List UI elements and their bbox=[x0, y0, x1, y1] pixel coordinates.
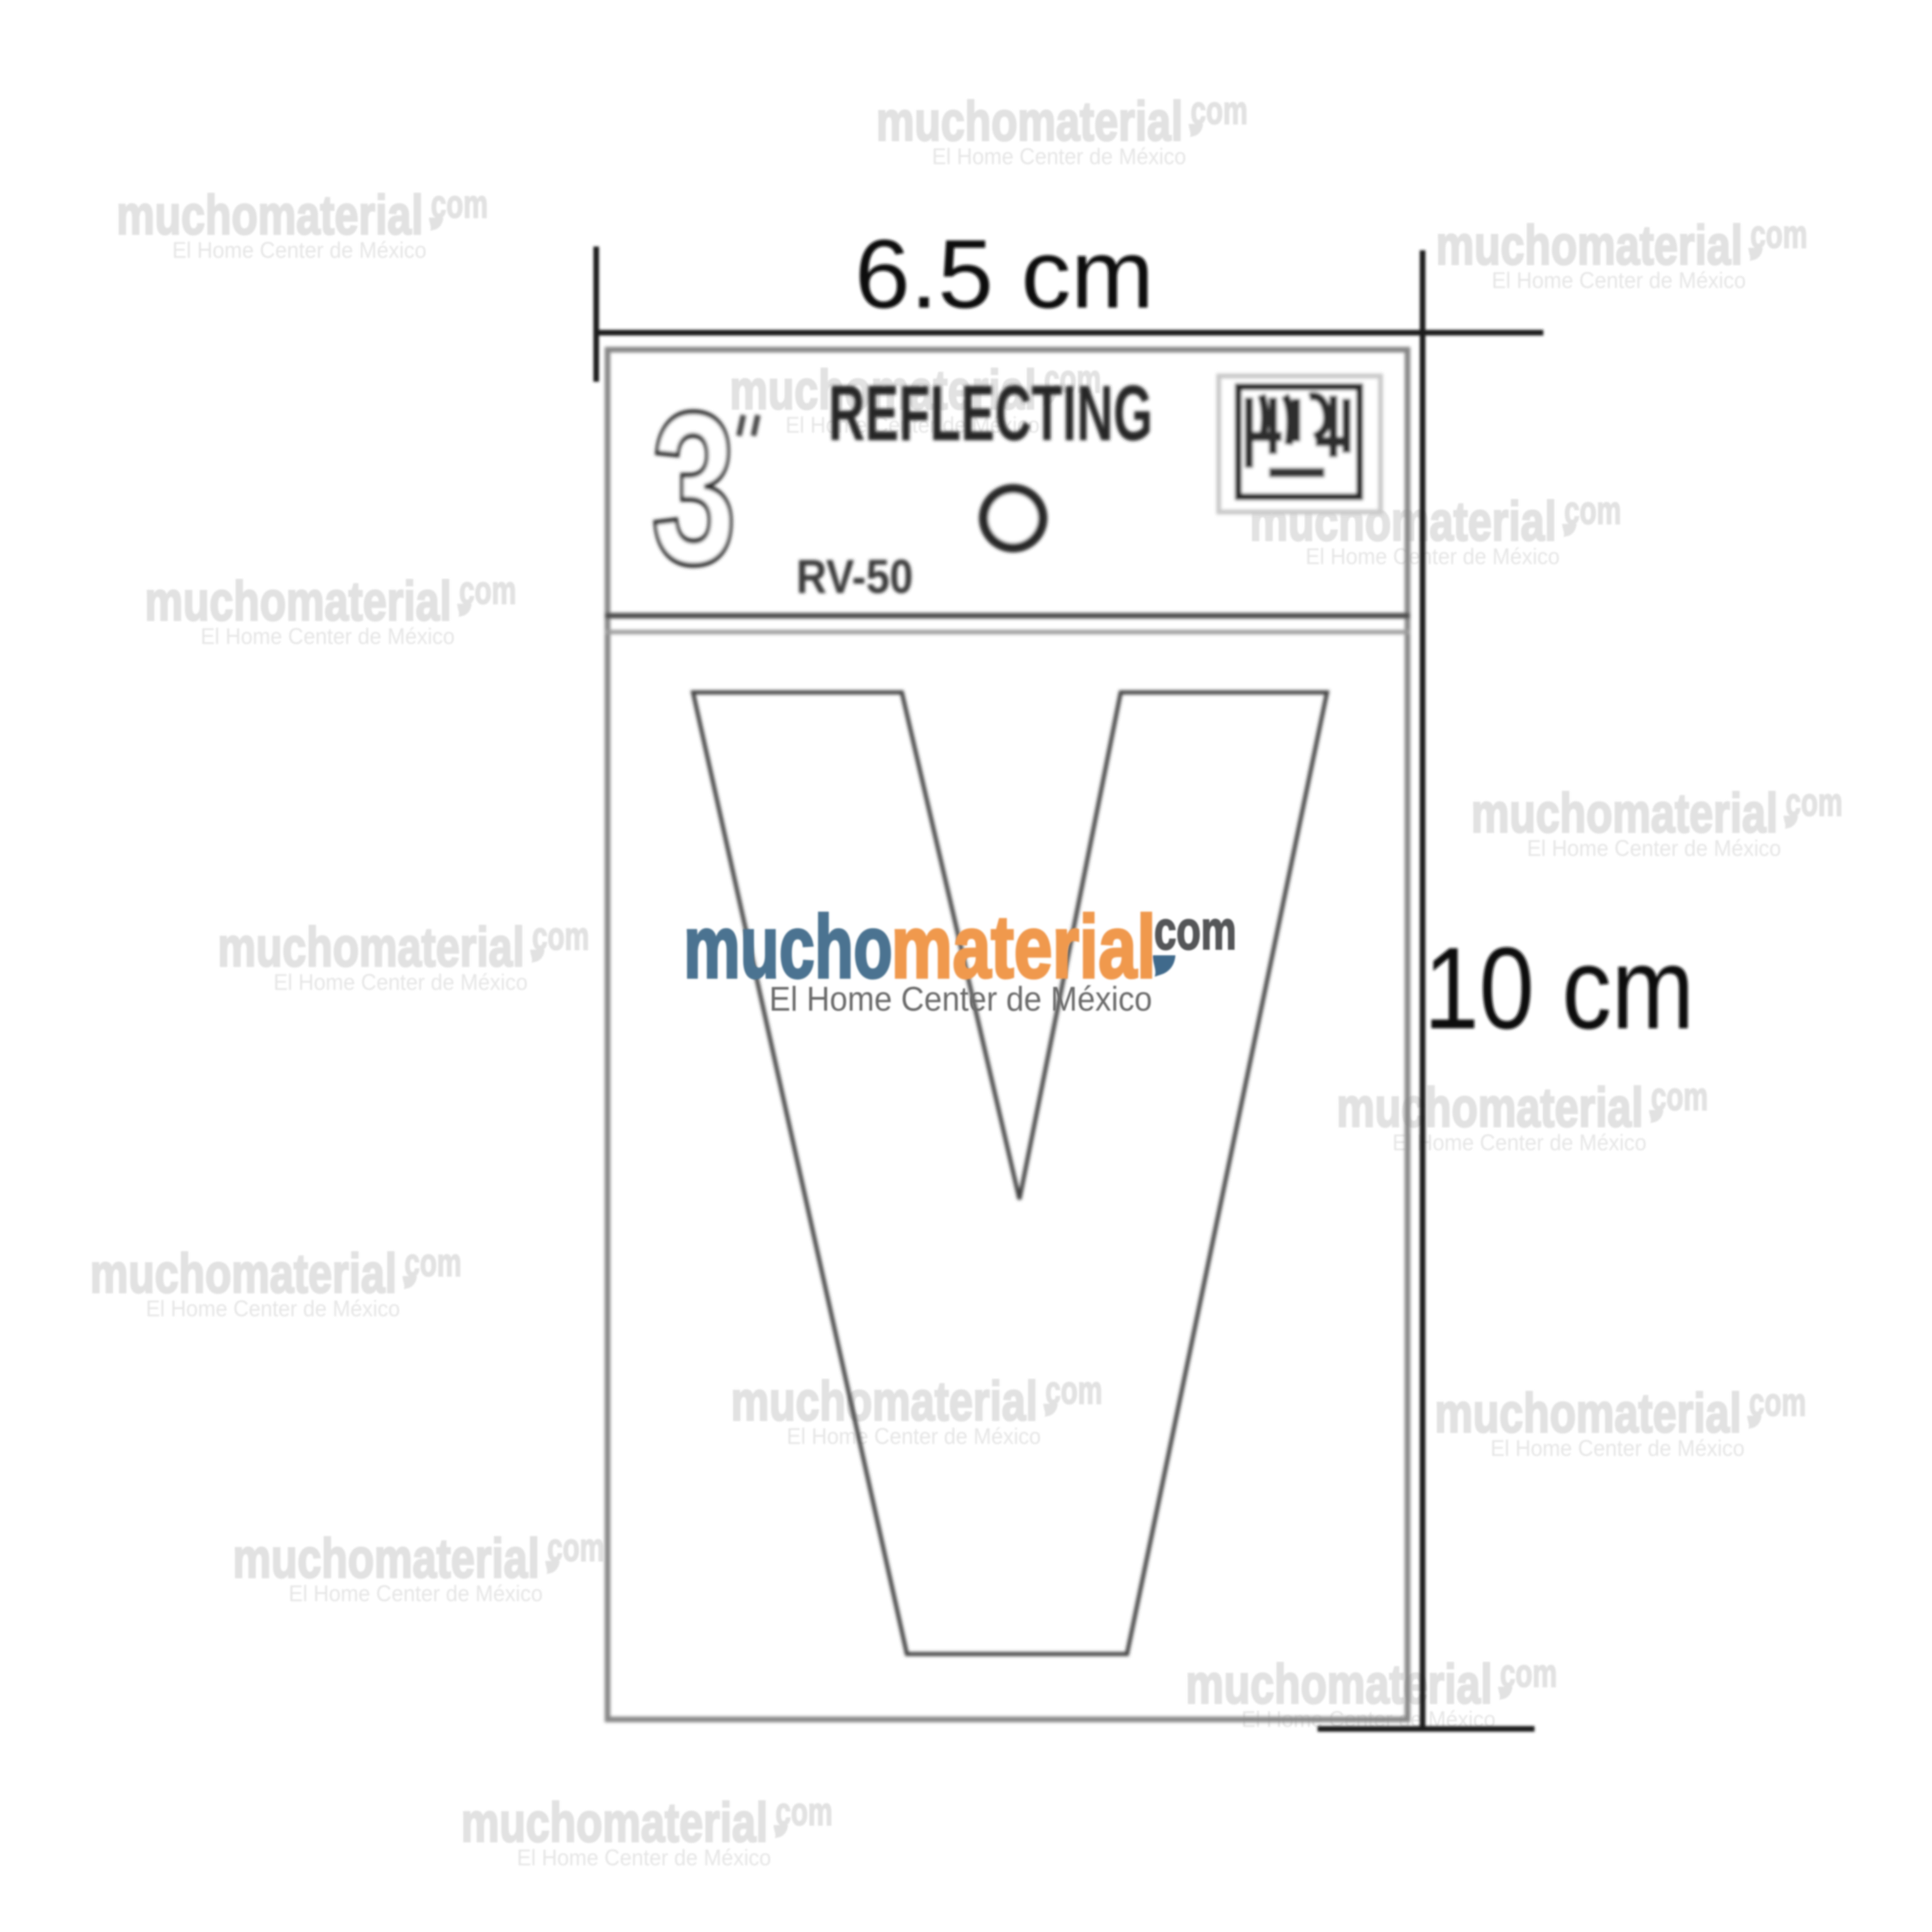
svg-text:El Home Center de México: El Home Center de México bbox=[769, 979, 1152, 1018]
svg-text:6.5 cm: 6.5 cm bbox=[855, 219, 1154, 328]
svg-text:10 cm: 10 cm bbox=[1424, 924, 1694, 1053]
svg-text:RV-50: RV-50 bbox=[796, 550, 913, 604]
svg-text:3: 3 bbox=[652, 367, 736, 609]
svg-text:REFLECTING: REFLECTING bbox=[828, 370, 1153, 457]
svg-text:com: com bbox=[1154, 900, 1236, 961]
